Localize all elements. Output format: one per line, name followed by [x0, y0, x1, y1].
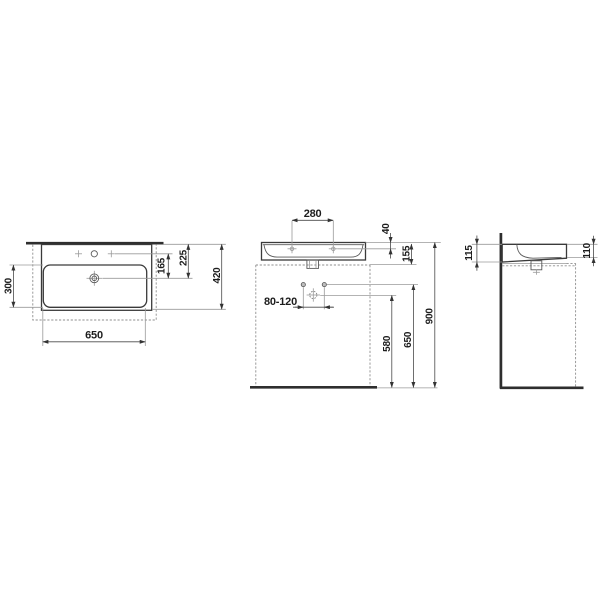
- supply-connection-icons: [301, 283, 326, 310]
- dim-label-height-wall: 115: [464, 245, 475, 261]
- washbasin-technical-drawing: 300 650 165 225 420 280: [0, 0, 600, 600]
- tap-hole-marks: [288, 244, 338, 253]
- dim-label-faucet-to-drain: 165: [157, 257, 168, 274]
- waste-outlet-crosshair-icon: [307, 288, 320, 301]
- bowl-curve-side: [517, 245, 562, 259]
- dim-label-supply-height: 650: [403, 331, 414, 348]
- plan-view: 300 650 165 225 420: [4, 243, 226, 346]
- dim-label-waste-height: 580: [382, 335, 393, 352]
- dim-label-rim-to-tap: 40: [381, 223, 392, 234]
- dim-label-height-front: 110: [582, 242, 593, 258]
- dim-label-bowl-depth: 300: [4, 277, 15, 294]
- dim-label-supply-spacing: 80-120: [264, 296, 297, 308]
- siphon-trap-icon: [307, 260, 319, 268]
- drain-icon: [87, 271, 103, 286]
- drawing-canvas: 300 650 165 225 420 280: [0, 0, 600, 600]
- vanity-outline-dashed: [256, 265, 370, 386]
- basin-side-profile: [502, 244, 566, 262]
- dim-label-basin-width: 650: [85, 330, 103, 342]
- dim-label-front-to-drain: 225: [179, 249, 190, 266]
- front-view: 280 80-120 4: [250, 208, 441, 388]
- dim-label-basin-height: 155: [402, 245, 413, 262]
- dim-label-tap-spacing: 280: [304, 208, 322, 220]
- side-view: 115 110: [464, 233, 598, 389]
- bowl-curve: [264, 245, 363, 257]
- vanity-outline-dashed-side: [502, 263, 575, 386]
- siphon-trap-side-icon: [531, 261, 542, 275]
- dim-label-overall-height: 900: [425, 308, 436, 325]
- faucet-hole-icon: [75, 250, 115, 257]
- dim-label-basin-depth: 420: [212, 267, 223, 284]
- bowl-outline: [43, 265, 146, 307]
